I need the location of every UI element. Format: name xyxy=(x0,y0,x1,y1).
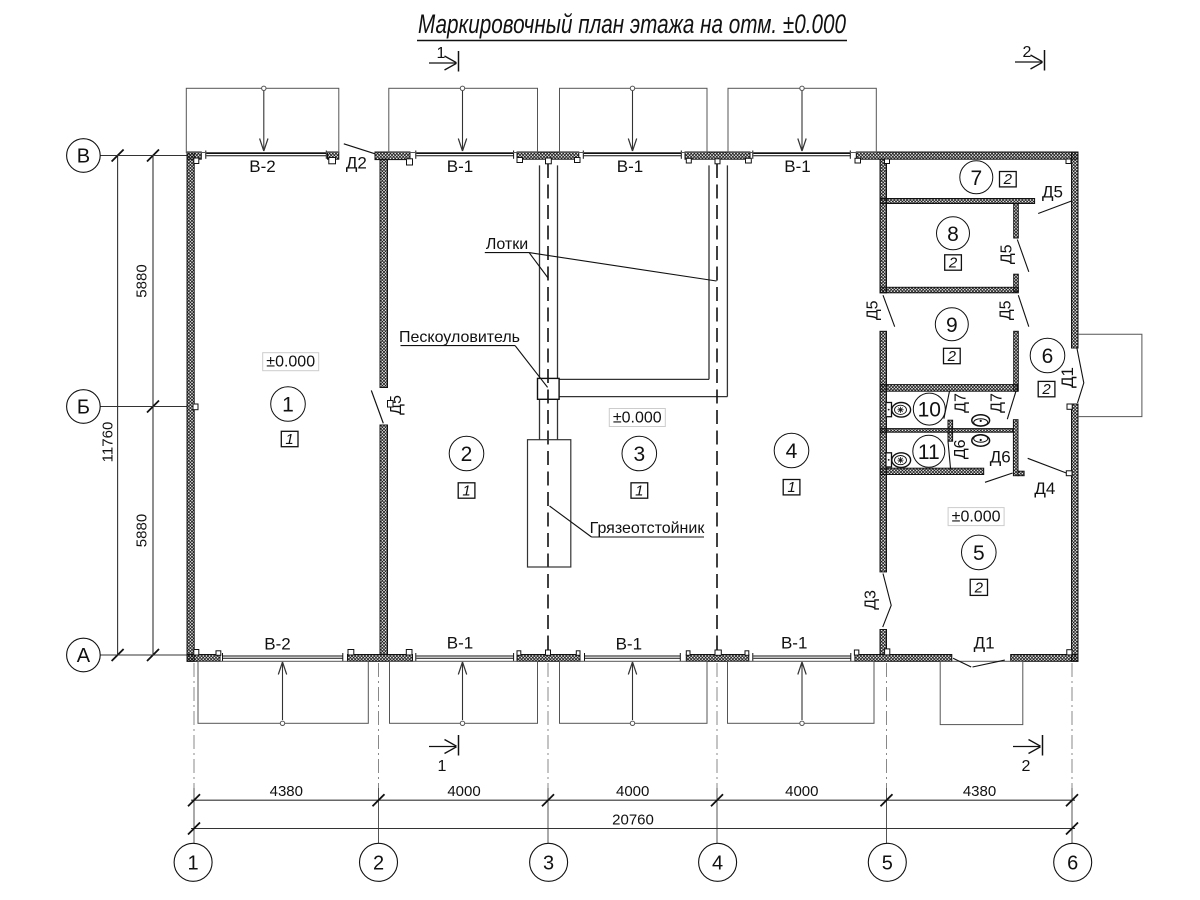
svg-text:2: 2 xyxy=(947,348,957,365)
svg-text:2: 2 xyxy=(1041,381,1051,398)
svg-text:3: 3 xyxy=(543,853,554,875)
svg-text:В-1: В-1 xyxy=(784,157,810,176)
svg-text:В-1: В-1 xyxy=(781,634,807,653)
svg-text:2: 2 xyxy=(948,254,958,271)
svg-text:4000: 4000 xyxy=(785,783,818,800)
svg-text:8: 8 xyxy=(947,223,959,246)
svg-text:1: 1 xyxy=(787,479,795,496)
svg-text:6: 6 xyxy=(1042,345,1054,368)
svg-text:Д1: Д1 xyxy=(974,634,995,653)
svg-text:4: 4 xyxy=(786,440,798,463)
svg-text:2: 2 xyxy=(461,443,473,466)
svg-text:1: 1 xyxy=(635,482,643,499)
svg-text:4380: 4380 xyxy=(963,783,996,800)
svg-text:А: А xyxy=(77,645,91,667)
svg-text:9: 9 xyxy=(946,314,958,337)
svg-text:Маркировочный план этажа на от: Маркировочный план этажа на отм. ±0.000 xyxy=(418,9,846,39)
svg-text:2: 2 xyxy=(974,579,984,596)
svg-text:В-2: В-2 xyxy=(264,635,290,654)
svg-text:2: 2 xyxy=(1022,758,1031,775)
svg-text:Д7: Д7 xyxy=(989,393,1006,413)
svg-text:В-1: В-1 xyxy=(447,634,473,653)
svg-text:2: 2 xyxy=(1003,171,1013,188)
svg-text:В-1: В-1 xyxy=(617,157,643,176)
svg-text:В-1: В-1 xyxy=(616,635,642,654)
svg-text:Д5: Д5 xyxy=(999,244,1016,264)
svg-text:4000: 4000 xyxy=(616,783,649,800)
svg-text:6: 6 xyxy=(1067,853,1078,875)
svg-text:Б: Б xyxy=(77,397,90,419)
svg-text:В: В xyxy=(77,146,90,168)
svg-text:Д5: Д5 xyxy=(865,300,882,320)
svg-text:1: 1 xyxy=(188,853,199,875)
svg-text:1: 1 xyxy=(282,394,294,417)
svg-text:Д6: Д6 xyxy=(952,439,969,459)
svg-text:5880: 5880 xyxy=(134,264,151,297)
svg-text:±0.000: ±0.000 xyxy=(613,409,662,426)
svg-text:Д5: Д5 xyxy=(1042,183,1063,202)
svg-text:4000: 4000 xyxy=(447,783,480,800)
svg-text:Лотки: Лотки xyxy=(486,236,528,253)
svg-text:2: 2 xyxy=(1023,44,1032,61)
svg-text:5880: 5880 xyxy=(134,514,151,547)
svg-text:3: 3 xyxy=(633,443,645,466)
svg-text:5: 5 xyxy=(882,853,893,875)
svg-text:10: 10 xyxy=(918,399,941,422)
svg-text:20760: 20760 xyxy=(612,812,654,829)
svg-text:1: 1 xyxy=(438,758,447,775)
svg-text:11: 11 xyxy=(918,441,940,464)
svg-text:Пескоуловитель: Пескоуловитель xyxy=(399,329,520,346)
svg-text:В-2: В-2 xyxy=(249,157,275,176)
svg-text:11760: 11760 xyxy=(100,422,117,463)
svg-text:Д4: Д4 xyxy=(1034,479,1055,498)
svg-text:±0.000: ±0.000 xyxy=(266,354,315,371)
svg-text:4380: 4380 xyxy=(270,783,303,800)
svg-text:Д6: Д6 xyxy=(990,448,1011,467)
svg-text:В-1: В-1 xyxy=(447,157,473,176)
svg-text:Грязеотстойник: Грязеотстойник xyxy=(590,520,706,537)
svg-text:±0.000: ±0.000 xyxy=(952,508,1001,525)
svg-text:Д3: Д3 xyxy=(863,590,880,610)
svg-text:4: 4 xyxy=(712,853,723,875)
svg-text:1: 1 xyxy=(437,45,446,62)
svg-text:Д5: Д5 xyxy=(998,300,1015,320)
svg-text:1: 1 xyxy=(285,431,293,448)
svg-text:5: 5 xyxy=(973,542,985,565)
svg-text:Д7: Д7 xyxy=(952,393,969,413)
svg-text:7: 7 xyxy=(970,167,982,190)
svg-text:Д1: Д1 xyxy=(1058,367,1077,388)
svg-text:2: 2 xyxy=(373,853,384,875)
svg-text:1: 1 xyxy=(462,482,470,499)
svg-text:Д2: Д2 xyxy=(346,154,367,173)
